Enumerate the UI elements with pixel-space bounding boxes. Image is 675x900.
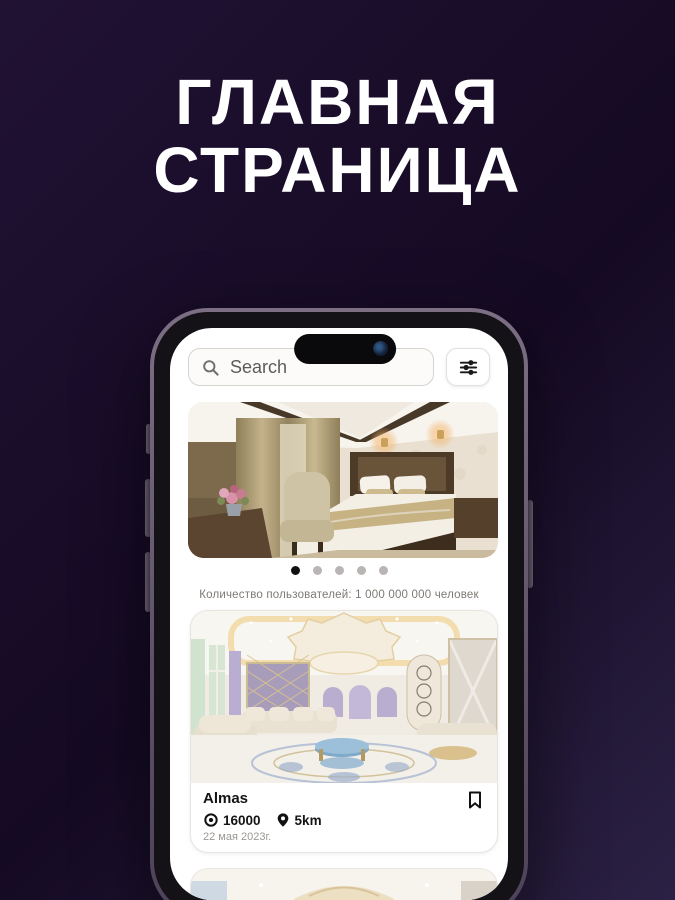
promo-background: ГЛАВНАЯ СТРАНИЦА (0, 0, 675, 900)
bookmark-icon (465, 798, 485, 813)
front-camera-icon (373, 341, 388, 356)
listing-footer: Almas 1 (191, 783, 497, 852)
listing-photo-majlis-interior[interactable] (191, 611, 497, 783)
dynamic-island (294, 334, 396, 364)
next-listing-photo (191, 869, 497, 900)
page-title-line1: ГЛАВНАЯ (0, 68, 675, 136)
location-pin-icon (275, 812, 291, 828)
next-listing-card[interactable] (190, 868, 498, 900)
listing-card[interactable]: Almas 1 (190, 610, 498, 853)
distance-value: 5km (295, 813, 322, 828)
carousel-dot[interactable] (313, 566, 322, 575)
eye-icon (203, 812, 219, 828)
listing-title: Almas (203, 790, 248, 807)
user-count-text: Количество пользователей: 1 000 000 000 … (170, 589, 508, 601)
distance-stat: 5km (275, 812, 322, 828)
magnifier-icon (201, 358, 220, 377)
carousel-dot[interactable] (379, 566, 388, 575)
filter-button[interactable] (446, 348, 490, 386)
views-stat: 16000 (203, 812, 261, 828)
listing-date: 22 мая 2023г. (203, 831, 485, 843)
bookmark-button[interactable] (465, 790, 485, 810)
carousel-dots (170, 566, 508, 575)
carousel-dot[interactable] (357, 566, 366, 575)
page-title: ГЛАВНАЯ СТРАНИЦА (0, 68, 675, 205)
sliders-icon (457, 356, 480, 379)
carousel-photo-hotel-bedroom[interactable] (188, 402, 498, 558)
views-count: 16000 (223, 813, 261, 828)
phone-mockup: Количество пользователей: 1 000 000 000 … (150, 308, 528, 900)
carousel-dot[interactable] (335, 566, 344, 575)
page-title-line2: СТРАНИЦА (0, 136, 675, 204)
listing-stats: 16000 5km (203, 812, 485, 828)
phone-screen: Количество пользователей: 1 000 000 000 … (170, 328, 508, 900)
phone-bezel: Количество пользователей: 1 000 000 000 … (154, 312, 524, 900)
carousel-dot[interactable] (291, 566, 300, 575)
